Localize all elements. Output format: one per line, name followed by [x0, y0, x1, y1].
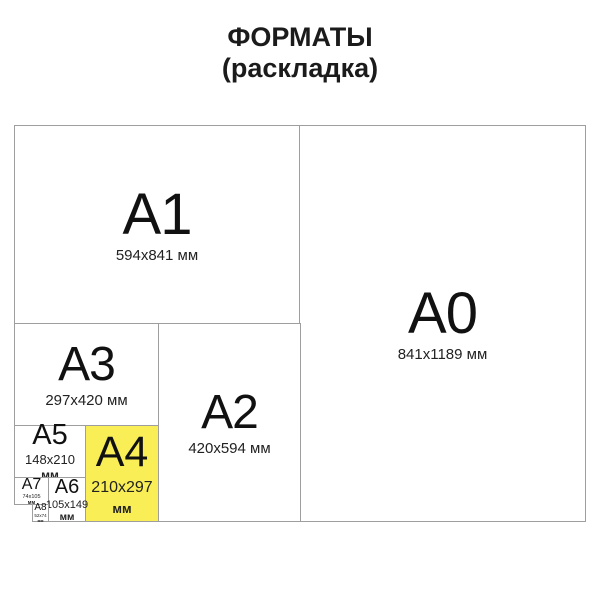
page-title-line1: ФОРМАТЫ: [0, 22, 600, 53]
page-title: ФОРМАТЫ (раскладка): [0, 22, 600, 84]
format-dims-a4: 210x297: [91, 479, 152, 497]
format-box-a8: A8 52x74 мм: [32, 504, 49, 522]
paper-formats-page: ФОРМАТЫ (раскладка) A1 594x841 мм A0 841…: [0, 0, 600, 600]
format-label-a5: A5: [32, 421, 67, 450]
format-dims-a6: 105x149: [46, 499, 88, 511]
format-box-a3: A3 297x420 мм: [14, 323, 159, 426]
format-dims-a3: 297x420 мм: [45, 392, 127, 409]
format-box-a6: A6 105x149 мм: [48, 477, 86, 522]
format-label-a8: A8: [34, 503, 46, 513]
format-label-a3: A3: [58, 341, 115, 389]
format-box-a0: A0 841x1189 мм: [299, 125, 586, 522]
format-box-a1: A1 594x841 мм: [14, 125, 300, 324]
format-dims-a2: 420x594 мм: [188, 440, 270, 457]
format-label-a2: A2: [201, 389, 258, 437]
format-box-a5: A5 148x210 мм: [14, 425, 86, 478]
format-label-a4: A4: [96, 431, 149, 474]
format-dims-unit-a6: мм: [60, 512, 75, 523]
format-dims-unit-a4: мм: [112, 501, 131, 516]
format-box-a4-highlighted: A4 210x297 мм: [85, 425, 159, 522]
page-title-line2: (раскладка): [0, 53, 600, 84]
format-label-a0: A0: [408, 285, 477, 343]
format-box-a2: A2 420x594 мм: [158, 323, 301, 522]
format-dims-a5: 148x210: [25, 452, 75, 467]
format-label-a1: A1: [123, 186, 192, 244]
format-dims-a1: 594x841 мм: [116, 247, 198, 264]
format-dims-unit-a8: мм: [38, 518, 44, 523]
format-label-a6: A6: [55, 477, 79, 497]
format-box-a7: A7 74x105 мм: [14, 477, 49, 505]
format-dims-a0: 841x1189 мм: [398, 346, 488, 363]
format-label-a7: A7: [22, 477, 42, 493]
